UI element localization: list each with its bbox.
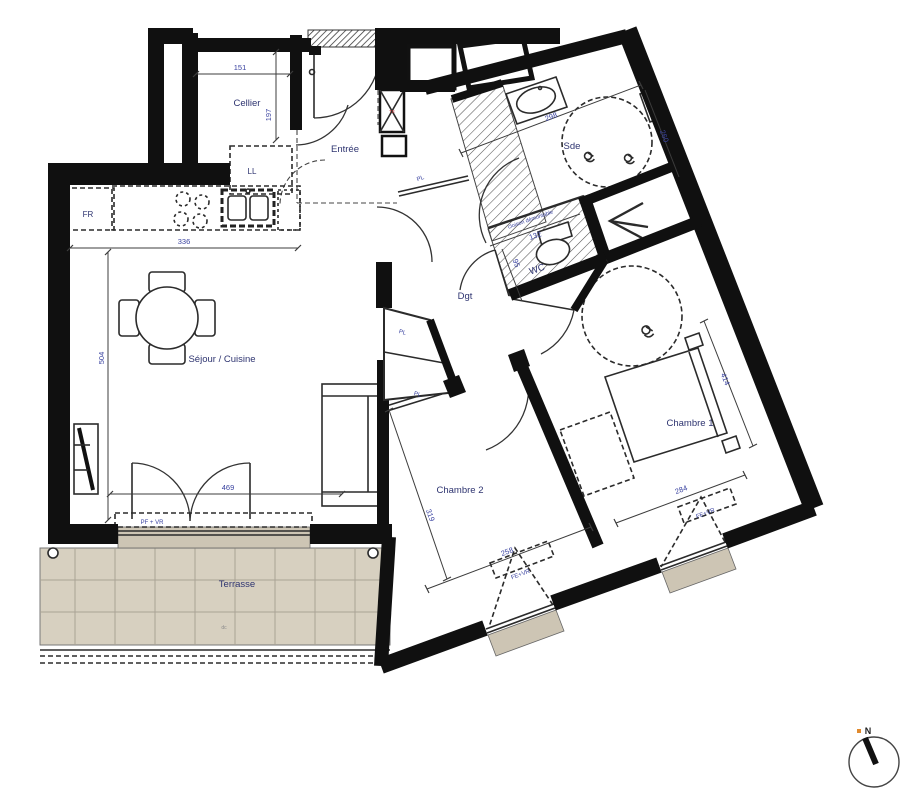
dim-sejour-width: 469 [222,483,235,492]
entree-dashed-arc [280,160,325,205]
wall-bottom-diagonal [553,565,659,603]
label-closet: PL [416,175,426,183]
floor-plan: Cellier Entrée Sde WC Dgt Séjour / Cuisi… [0,0,918,800]
nightstand [722,436,740,453]
label-technical-duct: TE [389,109,395,114]
dim-kitchen-width: 336 [178,237,191,246]
dining-table [136,287,198,349]
hob-burner [176,192,190,206]
wall-stub [148,28,164,164]
small-duct [382,136,406,156]
radiator-bar [79,428,93,490]
terrace-post-left [48,548,58,558]
room-label-chambre2: Chambre 2 [437,485,484,496]
dim-cellier-width: 151 [234,63,247,72]
label-washing-machine: LL [248,167,257,176]
compass: N [849,726,899,787]
sofa [322,384,378,506]
sink-bowl [228,196,246,220]
bed [605,348,727,462]
wall-chambre2-left [381,537,389,666]
fridge-box [64,188,114,230]
wheelchair-icon [624,153,635,165]
nightstand [685,333,703,350]
dim-chambre1-width: 284 [674,483,689,496]
label-french-door: PF + VR [141,520,165,526]
door-handle [310,70,315,75]
chambre2-window-sill [488,610,564,656]
room-label-terrasse: Terrasse [219,579,255,590]
north-arrow-icon [865,738,876,764]
terrace-floor [40,548,390,645]
room-label-entree: Entrée [331,144,359,155]
sink-bowl [250,196,268,220]
chambre1-door-leaf [512,299,574,310]
dim-chambre2-width: 258 [500,545,515,558]
label-terrace-note: dc [221,625,227,631]
hob-burner [193,214,207,228]
compass-mark [857,729,861,733]
entry-landing-hatch [308,30,378,47]
sink-tap [246,189,250,193]
turning-circle-chambre1 [582,266,682,366]
label-fridge: FR [83,210,94,219]
wc-door-arc [460,250,495,290]
room-label-chambre1: Chambre 1 [667,418,714,429]
dim-cellier-height: 197 [264,109,273,122]
sejour-door-arc [377,207,432,262]
wall-sde-bottom [580,164,679,203]
hob-burner [195,195,209,209]
washbasin-tap [539,87,542,90]
hob-burner [174,212,188,226]
wall-pillar-dgt [376,262,392,308]
wall-bottom-diagonal [725,508,814,541]
dim-sde-width: 298 [544,110,559,123]
wheelchair-icon [641,324,654,338]
room-label-sde: Sde [564,141,581,152]
terrace-post-right [368,548,378,558]
dim-chambre2-length: 319 [424,508,437,523]
room-label-cellier: Cellier [234,98,261,109]
dim-chambre1-length: 414 [719,372,732,387]
terrace [40,548,390,663]
room-label-dgt: Dgt [458,291,473,302]
chambre1-door-arc [541,310,574,354]
dim-sejour-height: 504 [97,352,106,365]
cellier-door-arc [296,105,348,145]
chambre1-window-sill [662,548,736,593]
wall-chambre1-chambre2 [520,362,598,546]
wall-bottom-diagonal [381,628,485,666]
compass-north-label: N [865,726,872,736]
wheelchair-icon [584,151,595,163]
entry-arrow-icon [610,203,648,238]
room-label-sejour: Séjour / Cuisine [188,354,255,365]
terrace-door-sill [118,527,310,548]
